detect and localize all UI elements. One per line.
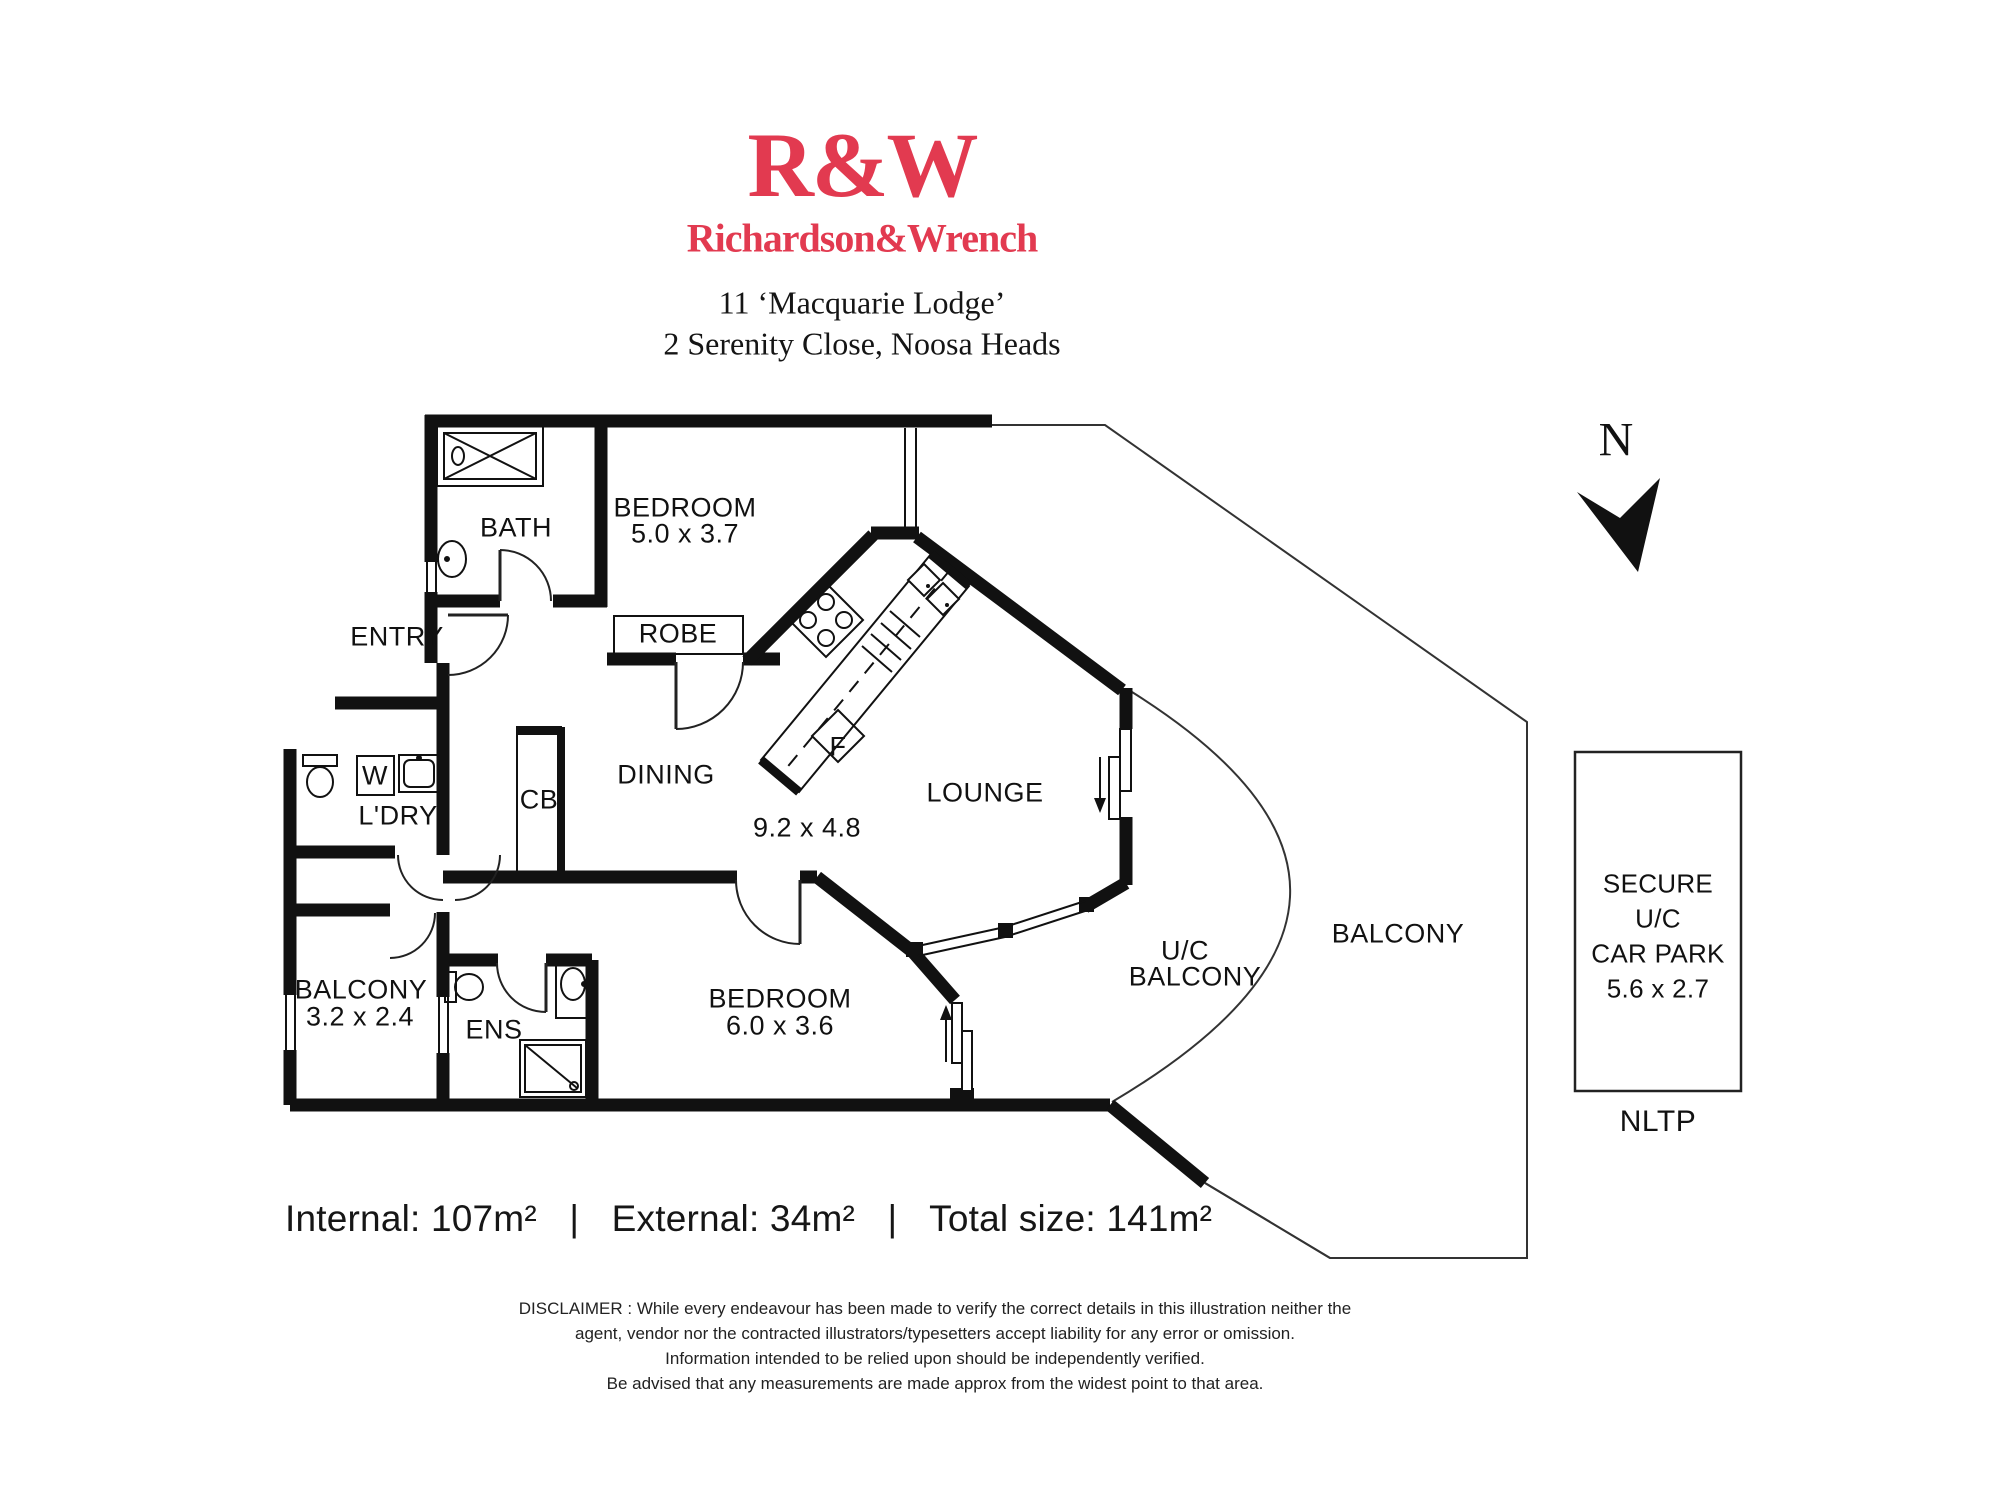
laundry-door-arc: [398, 855, 443, 900]
label-lounge: LOUNGE: [926, 778, 1043, 809]
balcony-outline: [992, 425, 1527, 1258]
doors: [390, 550, 800, 1012]
entry-door-arc: [448, 615, 508, 675]
label-fridge: F: [830, 732, 847, 763]
bath-window: [427, 562, 436, 592]
area-internal: Internal: 107m²: [285, 1198, 537, 1239]
disclaimer-line-2: agent, vendor nor the contracted illustr…: [485, 1321, 1385, 1346]
label-balcony-small-dims: 3.2 x 2.4: [306, 1002, 414, 1033]
label-robe: ROBE: [639, 619, 718, 650]
arrow-up-icon: [940, 1005, 952, 1020]
label-uc-balcony-2: BALCONY: [1129, 962, 1262, 993]
floor-plan-drawing: [0, 0, 2000, 1500]
label-laundry: L'DRY: [358, 801, 437, 832]
label-bath: BATH: [480, 513, 552, 544]
area-external: External: 34m²: [612, 1198, 855, 1239]
balcony-small-window: [286, 995, 295, 1050]
label-carpark-1: SECURE: [1603, 869, 1713, 900]
balcony-door-arc: [390, 913, 435, 958]
disclaimer-line-4: Be advised that any measurements are mad…: [485, 1371, 1385, 1396]
bathtub-icon: [437, 426, 543, 486]
bedroom1-window: [905, 428, 916, 531]
label-living-dims: 9.2 x 4.8: [753, 813, 861, 844]
label-entry: ENTRY: [350, 622, 444, 653]
label-bedroom1-dims: 5.0 x 3.7: [631, 519, 739, 550]
area-total: Total size: 141m²: [929, 1198, 1212, 1239]
label-ens: ENS: [465, 1015, 522, 1046]
north-label: N: [1599, 413, 1634, 468]
label-carpark-3: CAR PARK: [1591, 939, 1724, 970]
bay-window-1: [1005, 901, 1085, 937]
bath-door-arc: [500, 550, 551, 601]
area-separator-2: |: [888, 1198, 898, 1240]
uc-balcony-arc: [1112, 692, 1290, 1102]
disclaimer-line-3: Information intended to be relied upon s…: [485, 1346, 1385, 1371]
area-separator-1: |: [569, 1198, 579, 1240]
laundry-sink-icon: [399, 755, 439, 792]
walls: [290, 415, 1205, 1183]
sliding-door-bedroom2: [940, 1003, 972, 1091]
label-washer: W: [362, 761, 388, 792]
arrow-down-icon: [1094, 798, 1106, 813]
ens-door-arc: [497, 963, 546, 1012]
sliding-door-lounge: [1094, 729, 1131, 819]
label-carpark-dims: 5.6 x 2.7: [1607, 974, 1709, 1005]
stove-icon: [789, 583, 863, 657]
ens-toilet-icon: [445, 972, 483, 1002]
north-arrow-icon: [1577, 478, 1660, 572]
bath-basin-icon: [438, 541, 466, 577]
bay-window-2: [918, 927, 1005, 956]
label-dining: DINING: [617, 760, 715, 791]
shower-icon: [520, 1040, 586, 1097]
bedroom1-door-arc: [676, 662, 743, 729]
area-summary: Internal: 107m² | External: 34m² | Total…: [285, 1198, 1212, 1240]
bedroom2-door-arc: [736, 880, 800, 944]
laundry-toilet-icon: [303, 755, 337, 797]
label-bedroom2-dims: 6.0 x 3.6: [726, 1011, 834, 1042]
disclaimer: DISCLAIMER : While every endeavour has b…: [485, 1296, 1385, 1396]
label-carpark-2: U/C: [1635, 904, 1681, 935]
label-balcony-main: BALCONY: [1332, 919, 1465, 950]
ens-window: [439, 997, 448, 1053]
disclaimer-line-1: DISCLAIMER : While every endeavour has b…: [485, 1296, 1385, 1321]
label-nltp: NLTP: [1620, 1105, 1696, 1139]
floorplan-page: R&W Richardson&Wrench 11 ‘Macquarie Lodg…: [0, 0, 2000, 1500]
label-cupboard: CB: [520, 785, 559, 816]
